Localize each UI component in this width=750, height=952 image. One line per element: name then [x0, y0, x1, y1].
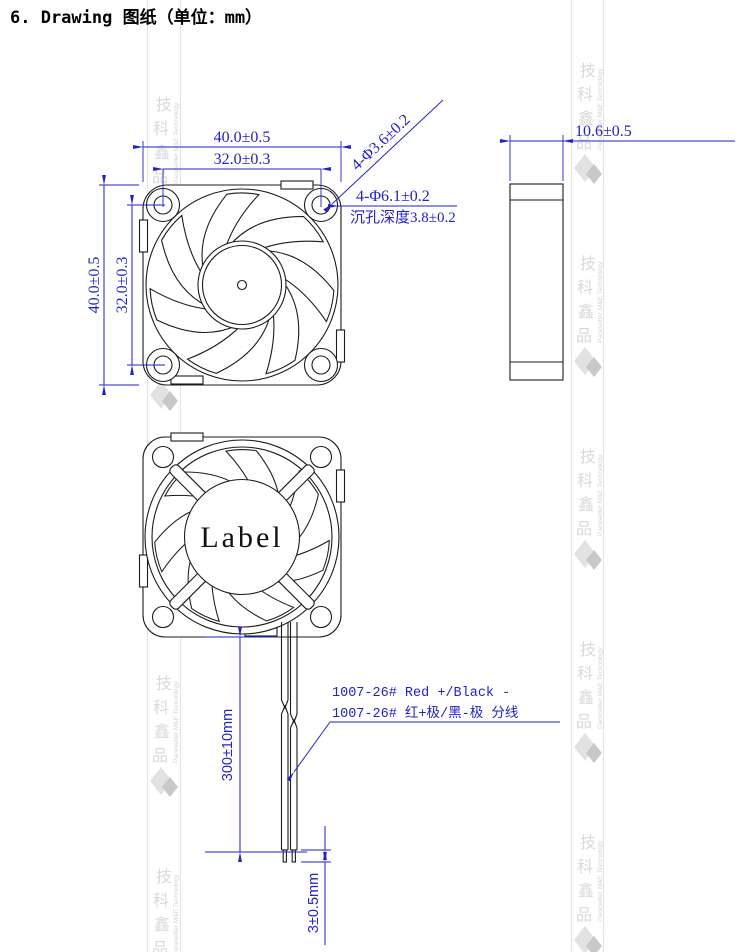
- dim-thickness: 10.6±0.5: [575, 123, 632, 140]
- wire-spec-line-1: 1007-26# Red +/Black -: [332, 686, 510, 701]
- dim-height-inner: 32.0±0.3: [114, 257, 131, 314]
- dimensions-side: 10.6±0.5: [510, 123, 735, 181]
- dim-strip-length: 3±0.5mm: [306, 873, 322, 933]
- wire-spec-line-2: 1007-26# 红+极/黑-极 分线: [332, 705, 518, 722]
- dim-hole-diameter: 4-Φ3.6±0.2: [348, 111, 414, 174]
- dim-height-outer: 40.0±0.5: [86, 257, 103, 314]
- hub-center-dot: [238, 281, 247, 290]
- dim-counterbore: 4-Φ6.1±0.2: [356, 188, 430, 205]
- page-title: 6. Drawing 图纸（单位：mm）: [10, 7, 262, 28]
- lead-wires: [282, 622, 298, 862]
- side-view: [510, 184, 563, 380]
- dim-width-outer: 40.0±0.5: [214, 129, 271, 146]
- dim-wire-length: 300±10mm: [220, 709, 236, 781]
- rear-view: Label: [140, 433, 345, 862]
- hub-label: Label: [200, 521, 283, 554]
- dim-width-inner: 32.0±0.3: [214, 151, 271, 168]
- dim-counterbore-depth: 沉孔深度3.8±0.2: [350, 209, 456, 226]
- front-view: [139, 179, 346, 385]
- side-profile: [510, 184, 563, 380]
- drawing-canvas: 技 科 鑫 品 Pacesetter M&E Technology 6. Dr: [0, 0, 750, 952]
- dimensions-rear: 300±10mm 3±0.5mm 1007-26# Red +/Black - …: [205, 637, 560, 945]
